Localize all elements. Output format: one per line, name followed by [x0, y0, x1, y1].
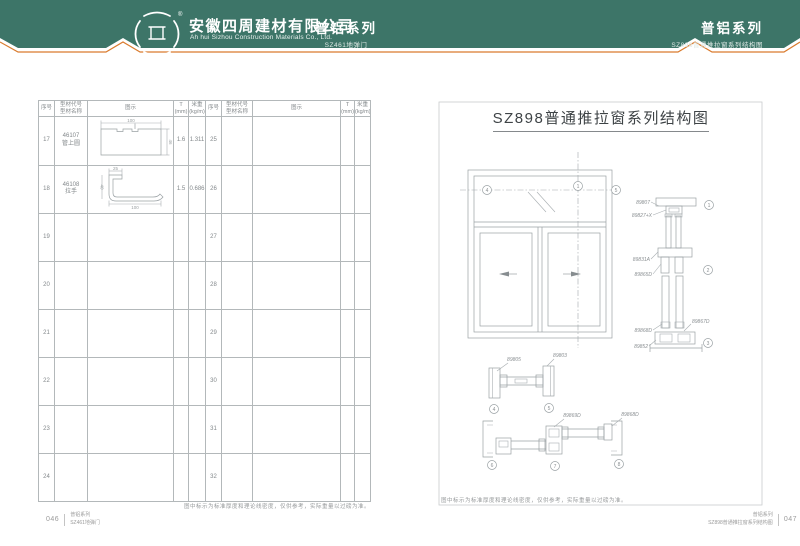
footer-series-info: 普铝系列 SZ898普通推拉窗系列结构图	[708, 512, 773, 527]
profile-table: 序号 型材代号 型材名称 图示 T (mm) 米重 (kg/m) 序号 型材代号…	[38, 100, 371, 502]
section-marker-1: 1	[574, 182, 583, 191]
page-number: 046	[46, 516, 59, 523]
col-no: 序号	[39, 101, 55, 117]
col-figure: 图示	[253, 101, 341, 117]
left-page-note: 图中标示为标准厚度和理论线密度，仅供参考，实际重量以过磅为准。	[38, 502, 370, 510]
slide-direction-arrows	[499, 272, 581, 277]
cell-weight	[355, 165, 371, 214]
cell-no: 19	[39, 214, 55, 262]
cell-weight	[355, 117, 371, 166]
cell-no: 24	[39, 454, 55, 502]
table-row: 23 31	[39, 406, 371, 454]
right-page-border	[439, 102, 762, 505]
section-marker-5: 5	[545, 404, 554, 413]
part-label: 89868D	[621, 412, 639, 418]
table-row: 21 29	[39, 310, 371, 358]
cell-code-name	[222, 117, 253, 166]
part-label: 89869D	[563, 413, 581, 419]
footer-series-info: 普铝系列 SZ461地弹门	[70, 512, 100, 527]
svg-text:3: 3	[707, 341, 710, 347]
col-weight: 米重 (kg/m)	[355, 101, 371, 117]
section-marker-1: 1	[705, 201, 714, 210]
table-row: 18 46108 拉手 25 40 100	[39, 165, 371, 214]
right-page-note: 图中标示为标准厚度和理论线密度，仅供参考，实际重量以过磅为准。	[441, 496, 627, 504]
diagram-title: SZ898普通推拉窗系列结构图	[493, 107, 710, 132]
registered-mark: ®	[178, 11, 183, 18]
profile-drawing-46108: 25 40 100	[89, 166, 173, 210]
svg-text:2: 2	[707, 268, 710, 274]
col-weight: 米重 (kg/m)	[189, 101, 206, 117]
svg-text:6: 6	[491, 463, 494, 469]
footer-divider	[778, 514, 779, 526]
col-thickness: T (mm)	[341, 101, 355, 117]
cell-figure	[253, 117, 341, 166]
col-no: 序号	[206, 101, 222, 117]
cell-no: 21	[39, 310, 55, 358]
cell-figure: 100 46	[88, 117, 174, 166]
section-marker-4: 4	[483, 186, 492, 195]
footer-right: 普铝系列 SZ898普通推拉窗系列结构图 047	[708, 512, 797, 527]
cell-thickness	[341, 165, 355, 214]
part-label: 89868D	[634, 328, 652, 334]
part-label: 89807	[636, 200, 650, 206]
header-center-block: 普铝系列 SZ461地弹门	[288, 0, 404, 49]
cell-no: 28	[206, 262, 222, 310]
cell-weight: 0.686	[189, 165, 206, 214]
cell-no: 22	[39, 358, 55, 406]
cell-thickness: 1.5	[174, 165, 189, 214]
dim-width: 100	[127, 118, 135, 123]
cell-thickness: 1.6	[174, 117, 189, 166]
table-row: 17 46107 管上圆 100 46 1.6	[39, 117, 371, 166]
cell-no: 25	[206, 117, 222, 166]
part-label: 89803	[553, 353, 567, 359]
page-number: 047	[784, 516, 797, 523]
catalog-page: ® 安徽四周建材有限公司 Ah hui Sizhou Construction …	[0, 0, 800, 546]
header-right-block: 普铝系列 SZ898普通推拉窗系列结构图	[671, 0, 763, 49]
part-label: 89831A	[633, 257, 651, 263]
part-label: 89852	[634, 344, 648, 350]
series-title-center: 普铝系列	[288, 17, 404, 37]
svg-text:7: 7	[554, 464, 557, 470]
dim-height: 46	[168, 139, 173, 145]
part-label: 89805	[507, 357, 521, 363]
right-page-title-wrap: SZ898普通推拉窗系列结构图	[455, 107, 747, 132]
cell-no: 29	[206, 310, 222, 358]
cell-code-name	[222, 165, 253, 214]
section-marker-2: 2	[704, 266, 713, 275]
structure-diagram: 1 4 5	[430, 95, 785, 512]
cell-no: 20	[39, 262, 55, 310]
col-code-name: 型材代号 型材名称	[55, 101, 88, 117]
vertical-section: 89807 89827+X 89831A 89865D 89868D 89852…	[632, 198, 714, 352]
series-subtitle-right: SZ898普通推拉窗系列结构图	[671, 39, 763, 49]
col-thickness: T (mm)	[174, 101, 189, 117]
cell-no: 27	[206, 214, 222, 262]
col-figure: 图示	[88, 101, 174, 117]
section-marker-7: 7	[551, 462, 560, 471]
part-label: 89827+X	[632, 213, 653, 219]
section-marker-3: 3	[704, 339, 713, 348]
series-subtitle-center: SZ461地弹门	[288, 39, 404, 49]
cell-no: 26	[206, 165, 222, 214]
svg-text:1: 1	[708, 203, 711, 209]
dim-width: 100	[131, 205, 139, 210]
cell-no: 32	[206, 454, 222, 502]
section-marker-5: 5	[612, 186, 621, 195]
cell-no: 18	[39, 165, 55, 214]
part-label: 89865D	[634, 272, 652, 278]
svg-text:5: 5	[615, 188, 618, 194]
cell-weight: 1.311	[189, 117, 206, 166]
part-label: 89867D	[692, 319, 710, 325]
section-marker-6: 6	[488, 461, 497, 470]
table-header-row: 序号 型材代号 型材名称 图示 T (mm) 米重 (kg/m) 序号 型材代号…	[39, 101, 371, 117]
cell-code-name: 46107 管上圆	[55, 117, 88, 166]
col-code-name: 型材代号 型材名称	[222, 101, 253, 117]
cell-thickness	[341, 117, 355, 166]
section-marker-8: 8	[615, 460, 624, 469]
svg-text:4: 4	[486, 188, 489, 194]
cell-no: 31	[206, 406, 222, 454]
dim-height: 40	[99, 184, 104, 190]
cell-no: 30	[206, 358, 222, 406]
horizontal-section-bottom: 4 5 89869D 89868D	[483, 404, 639, 471]
svg-text:4: 4	[493, 407, 496, 413]
window-elevation: 1 4 5	[460, 152, 621, 348]
svg-text:5: 5	[548, 406, 551, 412]
table-row: 19 27	[39, 214, 371, 262]
cell-no: 23	[39, 406, 55, 454]
svg-text:1: 1	[577, 184, 580, 190]
svg-text:8: 8	[618, 462, 621, 468]
dim-hook: 25	[112, 166, 118, 171]
table-row: 24 32	[39, 454, 371, 502]
cell-figure	[253, 165, 341, 214]
series-title-right: 普铝系列	[671, 17, 763, 37]
cell-no: 17	[39, 117, 55, 166]
cell-figure: 25 40 100	[88, 165, 174, 214]
table-row: 20 28	[39, 262, 371, 310]
footer-divider	[64, 514, 65, 526]
section-marker-4: 4	[490, 405, 499, 414]
cell-code-name: 46108 拉手	[55, 165, 88, 214]
footer-left: 046 普铝系列 SZ461地弹门	[46, 512, 100, 527]
profile-drawing-46107: 100 46	[89, 117, 173, 161]
horizontal-section-mid: 89805 89803	[489, 353, 567, 398]
table-row: 22 30	[39, 358, 371, 406]
